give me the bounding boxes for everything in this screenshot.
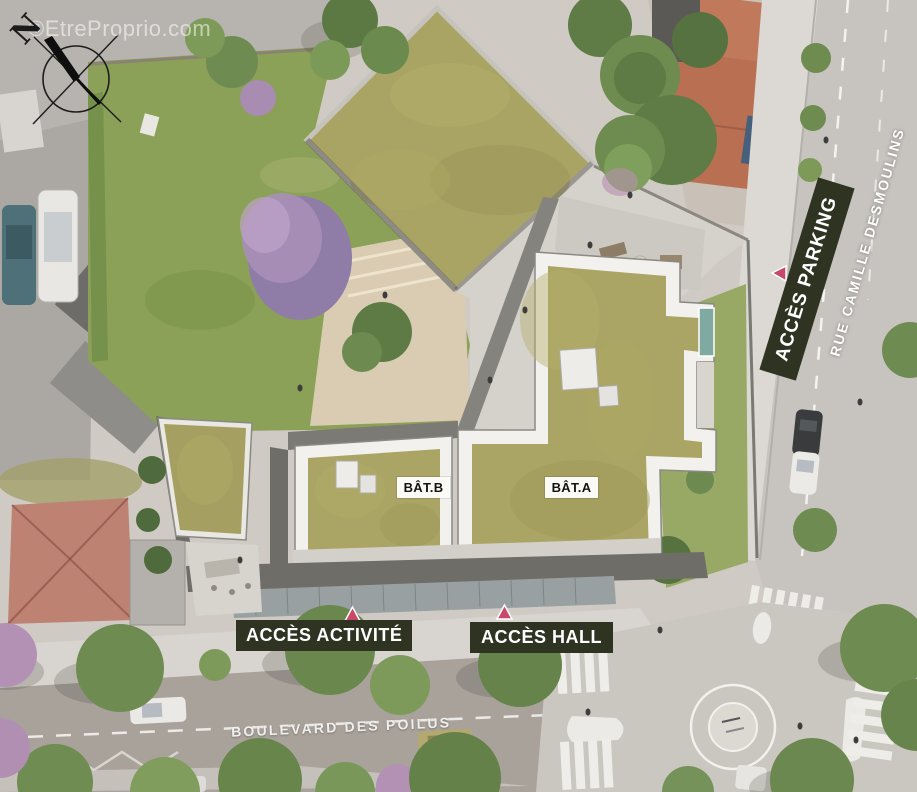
skylight [560, 348, 599, 390]
skylight [360, 475, 376, 493]
acces-hall-label: ACCÈS HALL [470, 622, 613, 653]
building-label-bat-b: BÂT.B [397, 477, 450, 498]
traffic-island-west [567, 716, 624, 742]
parked-vans [2, 190, 78, 305]
skylight [336, 461, 358, 488]
skylight [598, 385, 618, 406]
rooftop-pool [699, 308, 714, 356]
site-plan-image: ©EtreProprio.com N ACCÈS PARKING RUE CAM… [0, 0, 917, 792]
roundabout-center [709, 703, 757, 751]
building-label-bat-a: BÂT.A [545, 477, 598, 498]
site-plan-render [0, 0, 917, 792]
watermark: ©EtreProprio.com [28, 16, 211, 42]
acces-activite-label: ACCÈS ACTIVITÉ [236, 620, 412, 651]
